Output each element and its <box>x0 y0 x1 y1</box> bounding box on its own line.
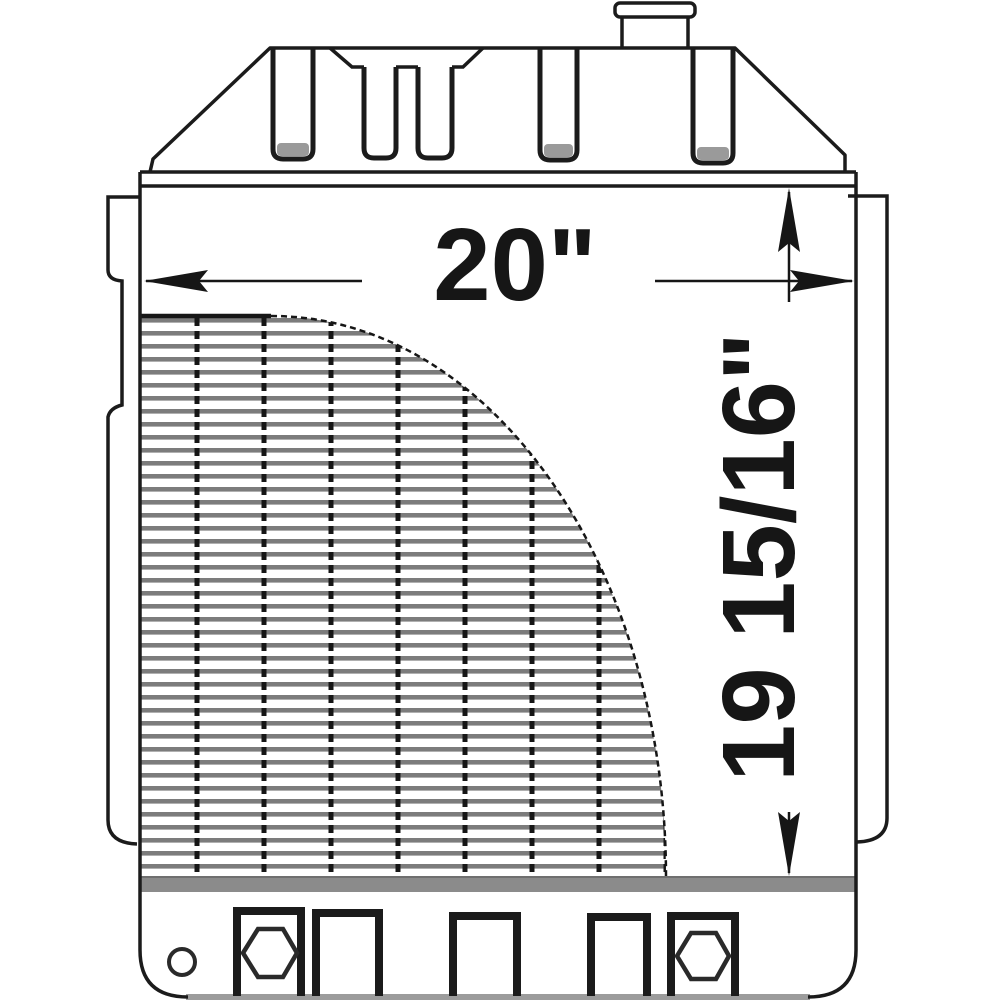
slot-shade-5 <box>697 147 729 160</box>
hex-bolt-right <box>677 933 729 979</box>
slot-shade-1 <box>277 143 309 156</box>
height-label: 19 15/16" <box>701 332 816 782</box>
hex-bolt-left <box>243 929 297 977</box>
radiator-diagram: 20" 19 15/16" <box>0 0 1000 1000</box>
filler-cap-flange <box>615 3 695 17</box>
width-label: 20" <box>433 207 596 322</box>
lower-tank-band <box>141 877 855 892</box>
slot-shade-3 <box>544 144 573 157</box>
drain-hole <box>169 949 195 975</box>
radiator-technical-drawing: 20" 19 15/16" <box>0 0 1000 1000</box>
